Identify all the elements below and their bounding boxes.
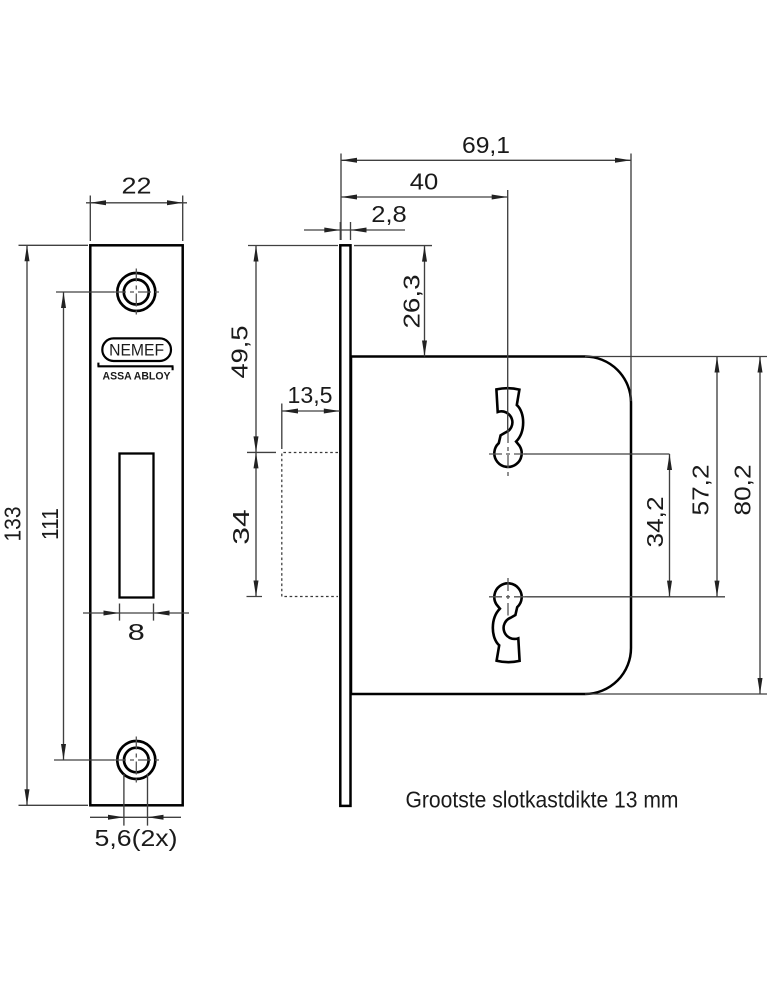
svg-text:133: 133 [0, 507, 26, 542]
svg-text:34,2: 34,2 [642, 497, 668, 548]
svg-text:49,5: 49,5 [227, 326, 253, 379]
svg-text:NEMEF: NEMEF [109, 341, 164, 360]
svg-text:22: 22 [122, 173, 152, 199]
svg-text:Grootste slotkastdikte 13 mm: Grootste slotkastdikte 13 mm [406, 787, 679, 813]
svg-text:8: 8 [128, 619, 145, 645]
svg-text:111: 111 [37, 508, 63, 540]
svg-text:5,6(2x): 5,6(2x) [95, 825, 178, 851]
svg-text:69,1: 69,1 [462, 132, 510, 158]
svg-text:57,2: 57,2 [688, 465, 714, 516]
svg-text:80,2: 80,2 [730, 465, 756, 516]
svg-text:34: 34 [228, 509, 254, 545]
svg-text:13,5: 13,5 [288, 382, 333, 408]
svg-text:ASSA ABLOY: ASSA ABLOY [103, 371, 172, 383]
svg-text:26,3: 26,3 [399, 275, 425, 329]
svg-text:40: 40 [410, 169, 439, 195]
svg-text:2,8: 2,8 [371, 201, 407, 227]
